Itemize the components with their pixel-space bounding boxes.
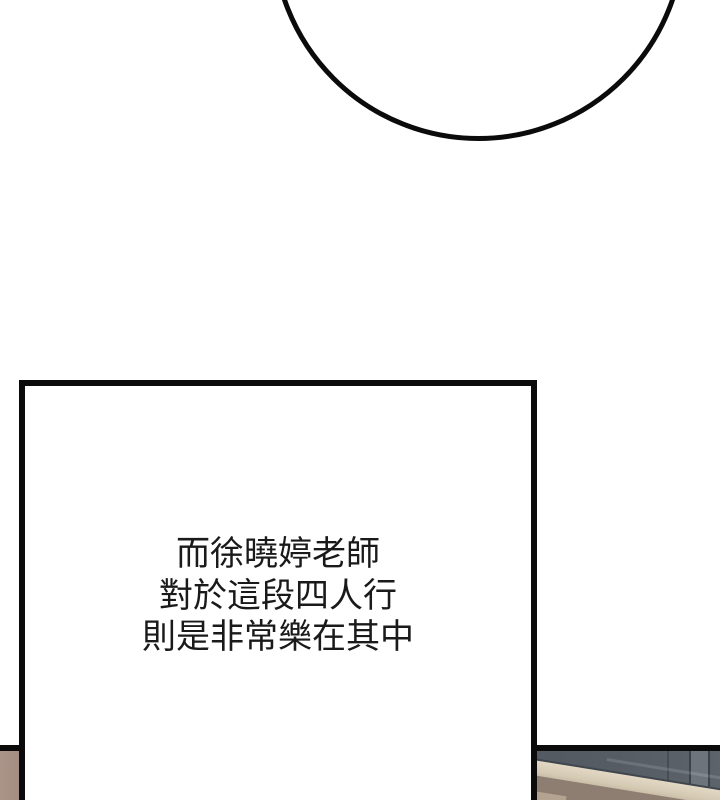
comic-page: 而徐曉婷老師 對於這段四人行 則是非常樂在其中 (0, 0, 720, 800)
caption-line: 對於這段四人行 (25, 576, 531, 618)
caption-text: 而徐曉婷老師 對於這段四人行 則是非常樂在其中 (25, 534, 531, 659)
caption-line: 則是非常樂在其中 (25, 617, 531, 659)
caption-line: 而徐曉婷老師 (25, 534, 531, 576)
caption-panel: 而徐曉婷老師 對於這段四人行 則是非常樂在其中 (19, 380, 537, 800)
speech-bubble-outline (271, 0, 686, 141)
